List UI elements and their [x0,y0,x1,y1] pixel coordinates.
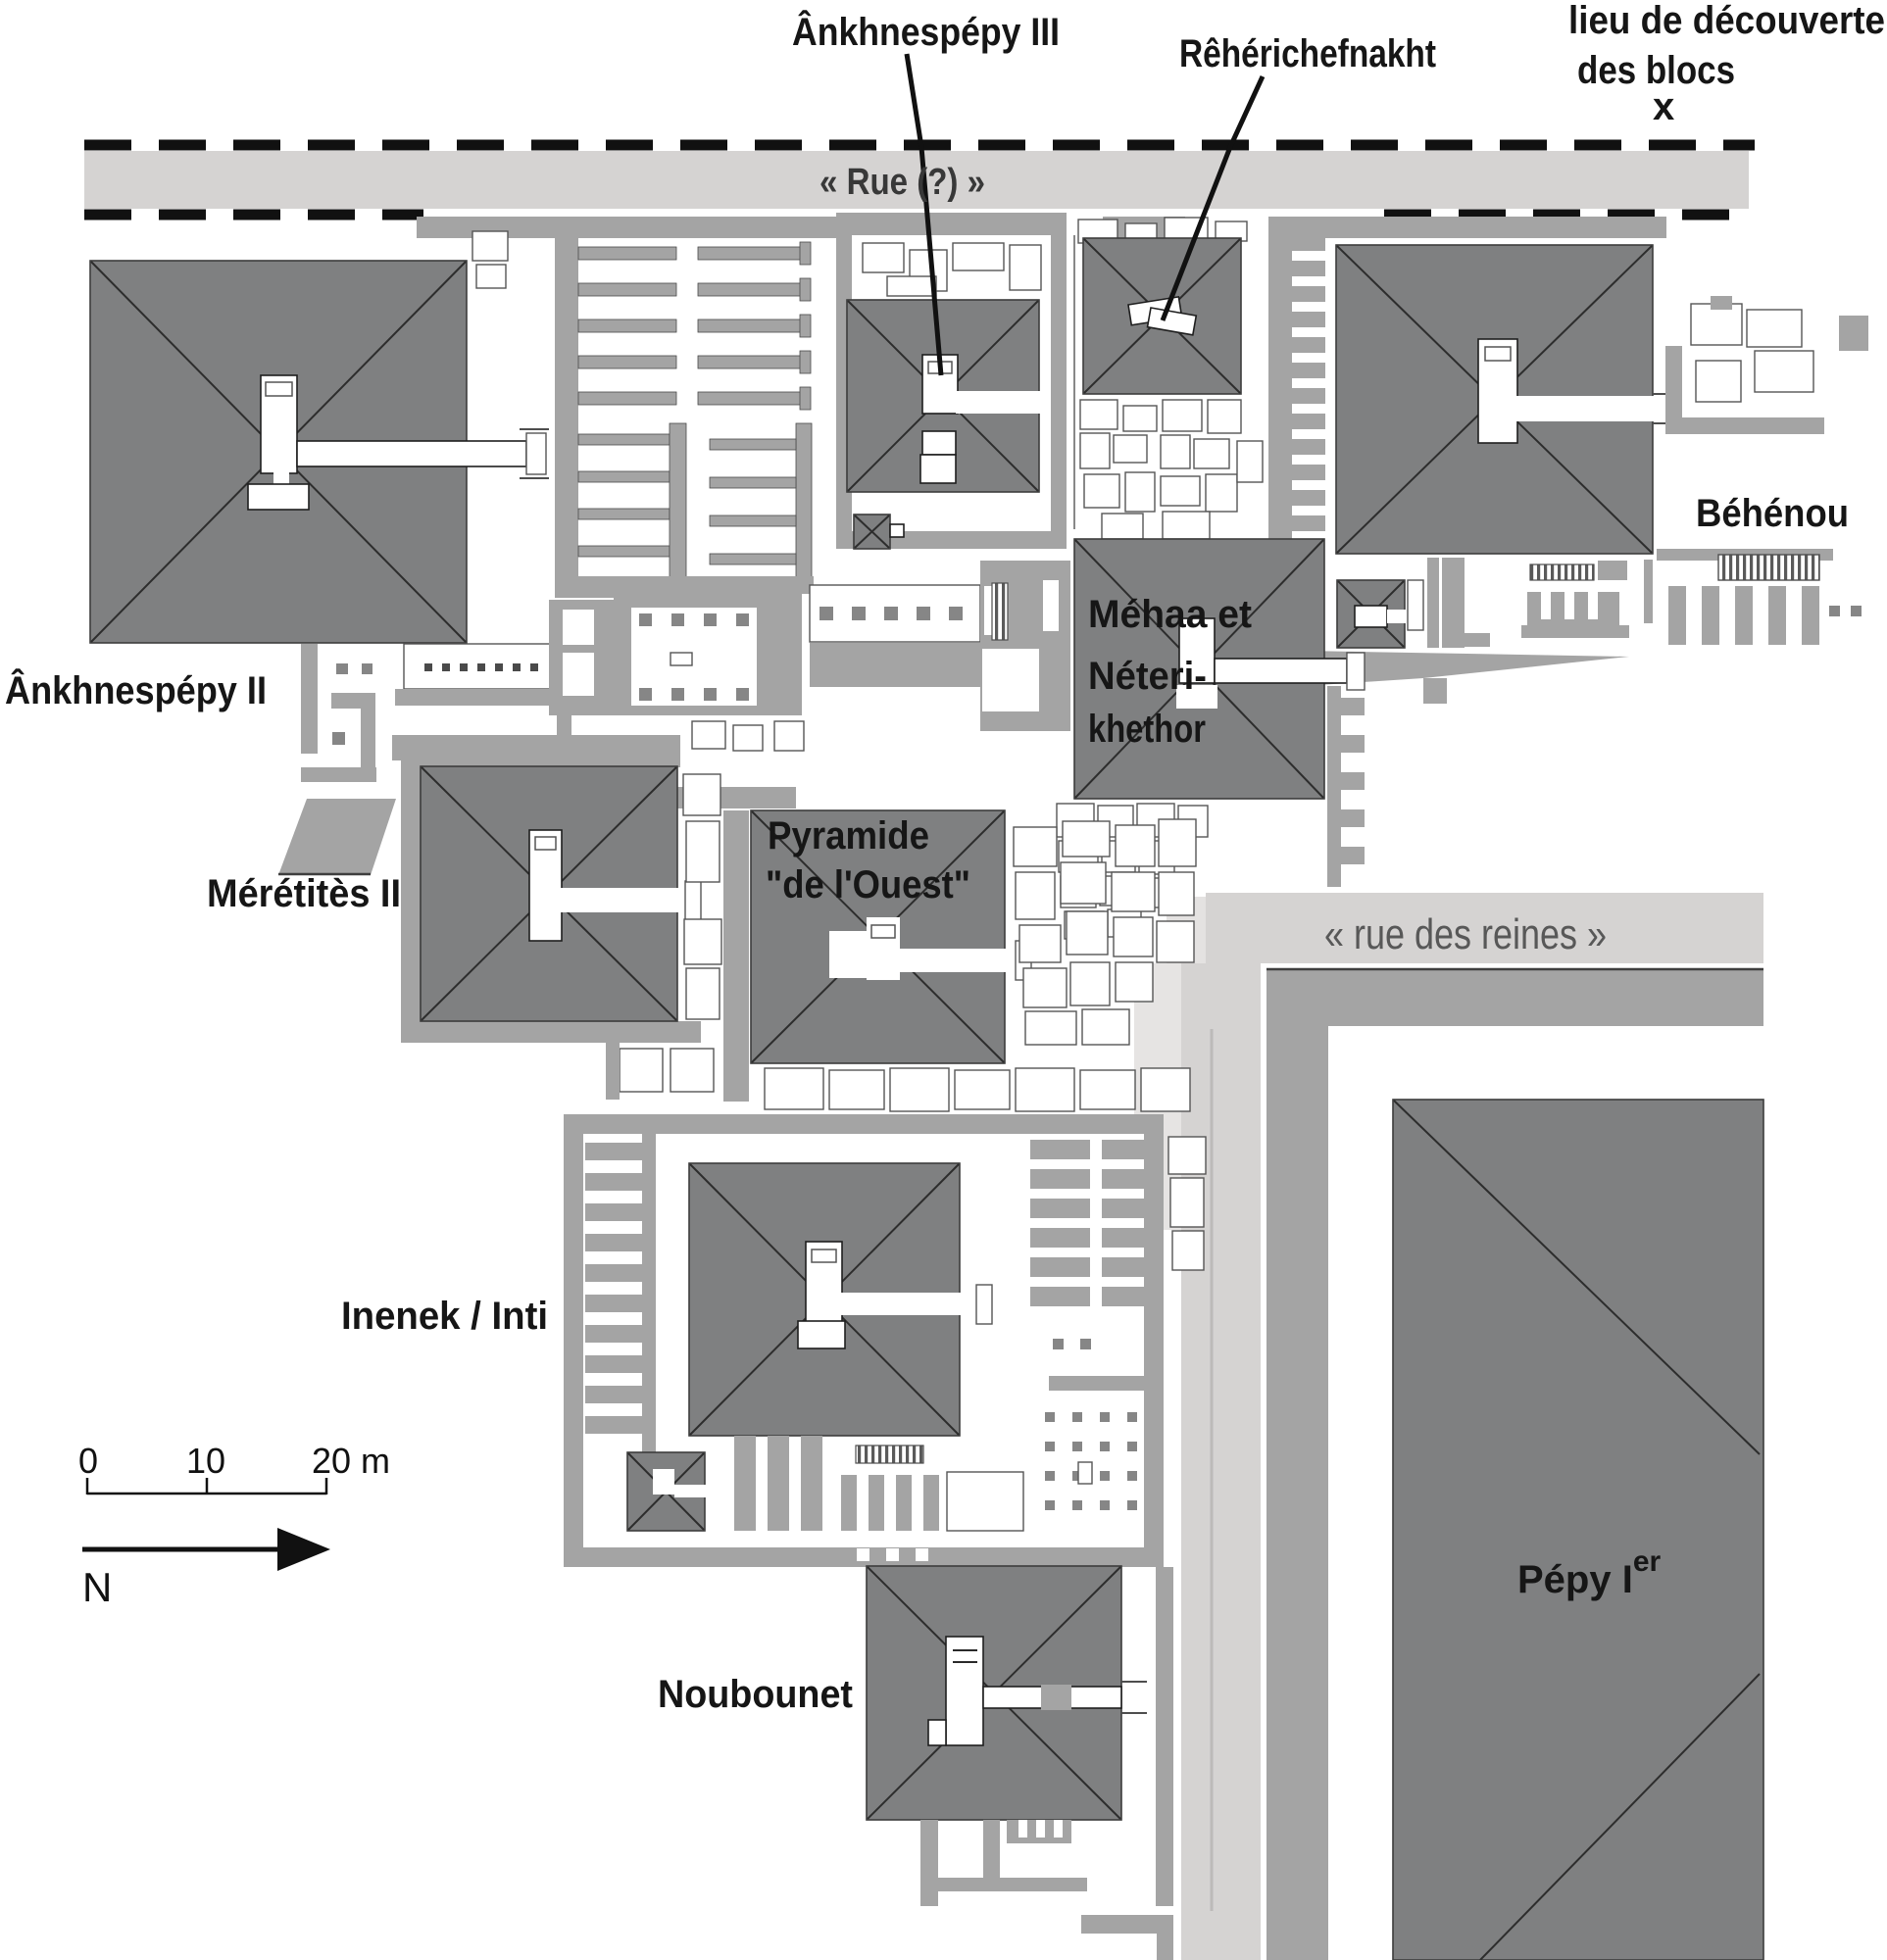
svg-text:« rue des reines »: « rue des reines » [1324,910,1607,958]
svg-text:Pyramide: Pyramide [768,814,929,857]
svg-text:20 m: 20 m [312,1441,390,1481]
svg-text:10: 10 [186,1441,225,1481]
svg-text:Béhénou: Béhénou [1696,492,1849,535]
svg-text:Rêhérichefnakht: Rêhérichefnakht [1179,32,1436,75]
svg-text:Noubounet: Noubounet [658,1673,853,1716]
svg-text:0: 0 [78,1441,98,1481]
svg-text:Méhaa et: Méhaa et [1088,593,1252,636]
svg-text:Inenek / Inti: Inenek / Inti [341,1295,548,1338]
svg-text:x: x [1653,85,1674,128]
svg-text:Mérétitès II: Mérétitès II [207,872,401,915]
svg-text:« Rue (?) »: « Rue (?) » [819,162,985,203]
svg-text:"de l'Ouest": "de l'Ouest" [766,863,970,906]
svg-text:lieu de découverte: lieu de découverte [1568,0,1885,42]
svg-text:Néteri-: Néteri- [1088,655,1207,698]
svg-text:Ânkhnespépy II: Ânkhnespépy II [5,667,267,712]
svg-text:Ânkhnespépy III: Ânkhnespépy III [792,9,1060,54]
svg-text:khethor: khethor [1088,708,1206,751]
svg-text:N: N [82,1564,112,1610]
